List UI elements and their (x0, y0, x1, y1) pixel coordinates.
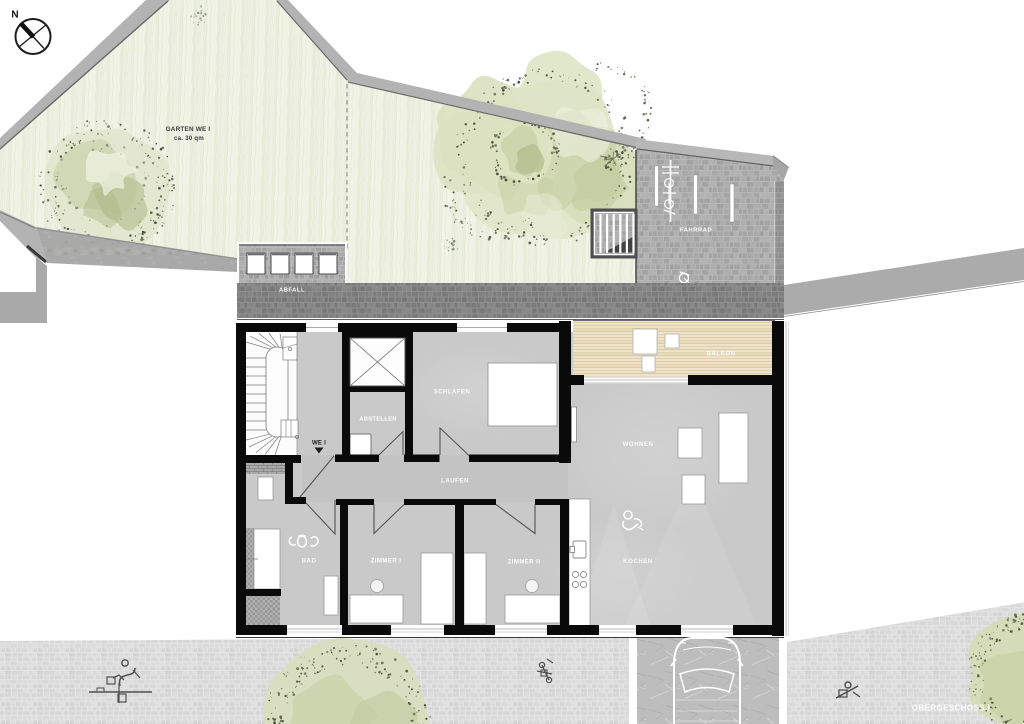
svg-text:OBERGESCHOSS I: OBERGESCHOSS I (912, 704, 991, 713)
svg-text:WOHNEN: WOHNEN (623, 441, 654, 448)
svg-text:BAD: BAD (302, 558, 317, 565)
svg-text:FAHRRAD: FAHRRAD (680, 228, 712, 234)
svg-text:KOCHEN: KOCHEN (623, 558, 652, 565)
svg-text:ca. 30 qm: ca. 30 qm (174, 135, 204, 142)
svg-text:BALKON: BALKON (706, 351, 735, 358)
svg-text:N: N (11, 10, 18, 21)
svg-text:ZIMMER I: ZIMMER I (371, 558, 402, 565)
svg-text:ABSTELLEN: ABSTELLEN (359, 417, 396, 423)
svg-text:GARTEN WE I: GARTEN WE I (166, 126, 211, 133)
svg-text:SCHLAFEN: SCHLAFEN (434, 389, 470, 396)
svg-text:ABFALL: ABFALL (279, 288, 305, 294)
svg-text:LAUFEN: LAUFEN (441, 478, 469, 485)
svg-text:WE I: WE I (312, 440, 326, 447)
svg-text:ZIMMER II: ZIMMER II (508, 559, 541, 566)
